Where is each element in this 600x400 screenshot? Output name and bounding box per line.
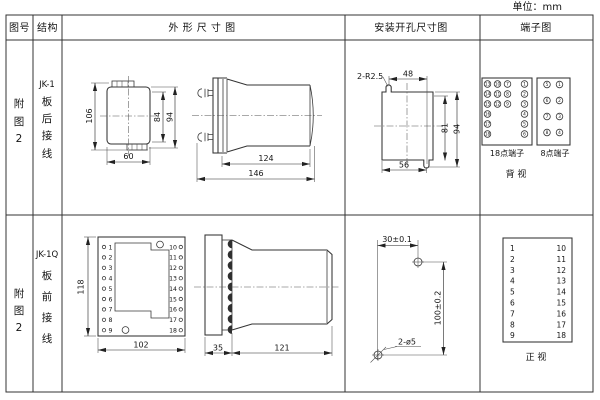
terminal-number: 6 <box>546 98 549 104</box>
terminal-circle <box>102 329 105 332</box>
dim-install-slot-label: 2-R2.5 <box>357 72 383 81</box>
terminal-number: 1 <box>558 82 561 88</box>
terminal-number: 9 <box>510 331 515 340</box>
terminal-circle <box>102 308 105 311</box>
terminal-number: 3 <box>109 265 113 272</box>
terminal-number: 9 <box>506 102 509 108</box>
dim-row2-install-holes: 2-ø5 <box>398 338 416 347</box>
terminal-number: 2 <box>558 98 561 104</box>
terminal-number: 1 <box>523 82 526 88</box>
terminal-circle <box>102 245 105 248</box>
row2-outline-side-view: 35 121 <box>194 235 340 356</box>
terminal-8pt-label: 8点端子 <box>540 148 569 158</box>
terminal-number: 4 <box>510 277 515 286</box>
dim-front-height-inner: 84 <box>153 112 162 122</box>
terminal-number: 11 <box>169 255 177 262</box>
row1-structure-char: 线 <box>42 147 53 160</box>
table-grid <box>6 15 593 392</box>
spec-sheet: 单位：mm 图号 结构 外 形 尺 寸 图 安装开孔尺寸图 端子图 附 图 2 … <box>0 0 600 400</box>
terminal-number: 14 <box>556 288 566 297</box>
row1-outline-side-view: 124 146 <box>192 78 322 182</box>
terminal-number: 3 <box>523 102 526 108</box>
terminal-number: 13 <box>556 277 566 286</box>
terminal-number: 6 <box>109 296 113 303</box>
dim-install-top: 48 <box>403 70 413 79</box>
terminal-circle <box>179 308 182 311</box>
terminal-number: 8 <box>109 317 113 324</box>
row1-fig-label: 附 图 2 <box>14 97 25 145</box>
terminal-number: 17 <box>485 122 491 128</box>
terminal-number: 7 <box>109 307 113 314</box>
terminal-number: 10 <box>556 244 566 253</box>
screw-head-icon <box>228 250 232 259</box>
dim-front-height-outer: 94 <box>166 112 175 122</box>
dim-install-right-outer: 94 <box>453 124 462 134</box>
terminal-number: 2 <box>510 255 515 264</box>
header-fig-no: 图号 <box>9 22 30 34</box>
terminal-number: 12 <box>169 265 177 272</box>
terminal-number: 12 <box>495 102 501 108</box>
terminal-circle <box>102 287 105 290</box>
dim-row2-install-horizontal: 30±0.1 <box>382 235 412 244</box>
header-install: 安装开孔尺寸图 <box>374 21 448 34</box>
terminal-circle <box>179 245 182 248</box>
screw-head-icon <box>228 272 232 281</box>
terminal-circle <box>179 329 182 332</box>
terminal-number: 13 <box>485 82 491 88</box>
dim-row2-flange: 35 <box>213 344 223 353</box>
terminal-number: 17 <box>556 320 566 329</box>
terminal-number: 4 <box>523 112 526 118</box>
terminal-number: 4 <box>109 276 113 283</box>
dim-row2-front-height: 118 <box>77 279 86 294</box>
terminal-circle <box>102 256 105 259</box>
screw-head-icon <box>228 293 232 302</box>
terminal-number: 8 <box>510 320 515 329</box>
row2-structure-char: 板 <box>42 269 53 282</box>
terminal-number: 14 <box>169 286 177 293</box>
terminal-circle <box>102 277 105 280</box>
terminal-number: 15 <box>169 296 177 303</box>
terminal-number: 7 <box>510 309 515 318</box>
row2-fig-char: 2 <box>16 322 23 334</box>
terminal-number: 12 <box>556 266 566 275</box>
row1-fig-char: 2 <box>16 133 23 145</box>
terminal-number: 11 <box>495 92 501 98</box>
terminal-18pt-label: 18点端子 <box>490 148 524 158</box>
terminal-number: 8 <box>506 92 509 98</box>
row2-structure-char: 前 <box>42 290 53 303</box>
terminal-number: 17 <box>169 317 177 324</box>
screw-head-icon <box>228 325 232 334</box>
terminal-number: 10 <box>495 82 501 88</box>
row2-structure-char: 线 <box>42 332 53 345</box>
terminal-number: 3 <box>510 266 515 275</box>
row1-fig-char: 图 <box>14 116 25 128</box>
row2-fig-char: 图 <box>14 305 25 317</box>
row1-outline-front-view: 106 84 94 60 <box>85 76 178 165</box>
screw-head-icon <box>228 261 232 270</box>
row2-structure-char: 接 <box>42 311 53 324</box>
row2-fig-char: 附 <box>14 287 25 300</box>
terminal-number: 10 <box>169 244 177 251</box>
terminal-number: 2 <box>523 92 526 98</box>
terminal-number: 5 <box>523 122 526 128</box>
row2-model: JK-1Q <box>35 250 59 260</box>
screw-terminal-icon <box>198 89 213 97</box>
dim-install-bottom: 56 <box>399 161 409 170</box>
terminal-number: 7 <box>506 82 509 88</box>
row1-structure-char: 后 <box>42 113 53 125</box>
row2-fig-label: 附 图 2 <box>14 287 25 334</box>
mount-hole-icon <box>122 327 129 334</box>
row2-install-diagram: 30±0.1 100±0.2 2-ø5 <box>371 235 448 363</box>
table-header: 图号 结构 外 形 尺 寸 图 安装开孔尺寸图 端子图 <box>9 21 552 34</box>
header-structure: 结构 <box>37 21 58 34</box>
screw-terminal-icon <box>198 133 213 141</box>
dim-side-body: 124 <box>258 154 273 163</box>
terminal-circle <box>102 318 105 321</box>
mount-hole-icon <box>157 241 164 248</box>
row1-structure-char: 接 <box>42 129 53 142</box>
terminal-number: 8 <box>546 130 549 136</box>
terminal-number: 2 <box>109 255 113 262</box>
terminal-number: 15 <box>556 299 566 308</box>
row1-model: JK-1 <box>38 80 55 90</box>
terminal-circle <box>179 256 182 259</box>
row1-terminal-diagram: 131071141182151293164175186 51627384 18点… <box>482 78 570 180</box>
row1-fig-char: 附 <box>14 97 25 110</box>
terminal-number: 6 <box>510 299 515 308</box>
terminal-number: 18 <box>169 328 177 335</box>
terminal-number: 4 <box>558 130 561 136</box>
terminal-number: 9 <box>109 328 113 335</box>
terminal-number: 11 <box>556 255 566 264</box>
screw-head-icon <box>228 315 232 324</box>
dim-front-width: 60 <box>123 152 133 161</box>
dim-front-height-total: 106 <box>85 108 94 123</box>
terminal-18pt-grid: 131071141182151293164175186 <box>484 81 528 138</box>
terminal-number: 3 <box>558 114 561 120</box>
row2-view-label: 正 视 <box>526 351 547 363</box>
terminal-front-numbers: 123456789101112131415161718 <box>510 244 566 340</box>
drawing-sheet: 单位：mm 图号 结构 外 形 尺 寸 图 安装开孔尺寸图 端子图 附 图 2 … <box>0 0 600 400</box>
terminal-number: 16 <box>169 307 177 314</box>
terminal-circle <box>102 266 105 269</box>
terminal-number: 5 <box>109 286 113 293</box>
dim-row2-front-width: 102 <box>133 341 148 350</box>
terminal-8pt-grid: 51627384 <box>544 81 563 136</box>
header-terminal: 端子图 <box>520 21 552 34</box>
header-outline: 外 形 尺 寸 图 <box>168 21 235 34</box>
terminal-number: 18 <box>485 132 491 138</box>
terminal-number: 13 <box>169 276 177 283</box>
terminal-number: 18 <box>556 331 566 340</box>
terminal-number: 16 <box>485 112 491 118</box>
dim-row2-body: 121 <box>274 344 289 353</box>
row2-structure-label: JK-1Q 板 前 接 线 <box>35 250 59 345</box>
row1-install-diagram: 48 81 94 56 2-R2.5 <box>357 70 462 174</box>
terminal-number: 5 <box>546 82 549 88</box>
dim-side-total: 146 <box>248 169 263 178</box>
terminal-circle <box>179 277 182 280</box>
row1-structure-label: JK-1 板 后 接 线 <box>38 80 55 160</box>
dim-install-right-inner: 81 <box>441 123 450 133</box>
screw-head-icon <box>228 304 232 313</box>
terminal-number: 1 <box>109 244 113 251</box>
screw-head-icon <box>228 240 232 249</box>
terminal-circle <box>179 266 182 269</box>
terminal-number: 1 <box>510 244 515 253</box>
terminal-number: 14 <box>485 92 491 98</box>
terminal-number: 7 <box>546 114 549 120</box>
row1-structure-char: 板 <box>42 95 53 108</box>
row2-outline-front-view: 123456789101112131415161718 118 102 <box>77 237 186 353</box>
terminal-number: 15 <box>485 102 491 108</box>
terminal-circle <box>102 297 105 300</box>
row2-terminal-diagram: 123456789101112131415161718 正 视 <box>503 238 572 363</box>
terminal-number: 6 <box>523 132 526 138</box>
terminal-number: 5 <box>510 288 515 297</box>
terminal-circle <box>179 297 182 300</box>
dim-row2-install-vertical: 100±0.2 <box>434 291 443 326</box>
row1-view-label: 背 视 <box>506 168 527 180</box>
terminal-number: 16 <box>556 309 566 318</box>
row2-front-terminals: 123456789101112131415161718 <box>102 244 182 334</box>
unit-label: 单位：mm <box>513 0 562 13</box>
terminal-circle <box>179 318 182 321</box>
terminal-circle <box>179 287 182 290</box>
